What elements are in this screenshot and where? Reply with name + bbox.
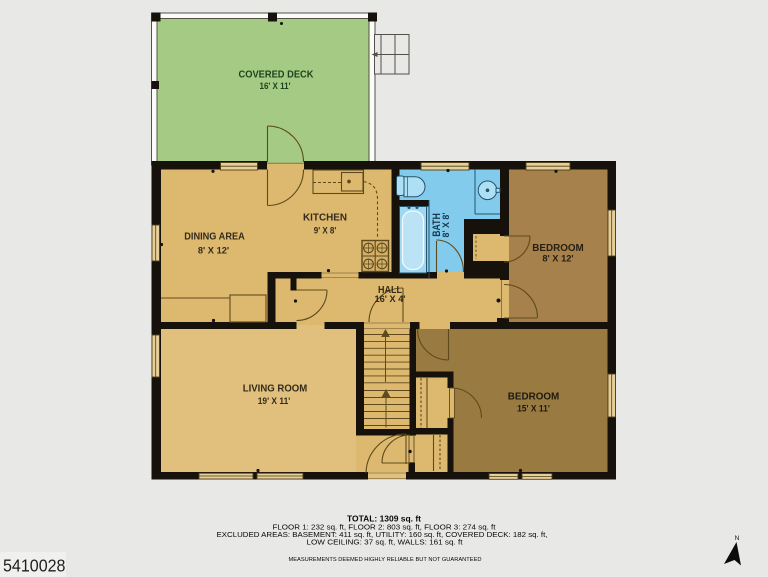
svg-text:KITCHEN: KITCHEN xyxy=(303,212,347,224)
svg-text:BEDROOM: BEDROOM xyxy=(532,242,584,254)
svg-text:8' X 8': 8' X 8' xyxy=(441,213,452,238)
svg-text:16' X 11': 16' X 11' xyxy=(260,81,291,92)
svg-text:9' X 8': 9' X 8' xyxy=(314,226,337,237)
svg-text:DINING AREA: DINING AREA xyxy=(184,231,245,243)
svg-text:5410028: 5410028 xyxy=(3,556,66,576)
svg-text:LOW CEILING: 37 sq. ft, WALLS:: LOW CEILING: 37 sq. ft, WALLS: 161 sq. f… xyxy=(307,538,464,547)
svg-text:COVERED DECK: COVERED DECK xyxy=(239,69,314,81)
svg-text:8' X 12': 8' X 12' xyxy=(198,246,229,257)
svg-text:BEDROOM: BEDROOM xyxy=(508,391,560,403)
svg-text:LIVING ROOM: LIVING ROOM xyxy=(243,383,308,395)
svg-text:15' X 11': 15' X 11' xyxy=(517,404,550,415)
svg-text:16' X 4': 16' X 4' xyxy=(375,294,406,305)
svg-text:MEASUREMENTS DEEMED HIGHLY REL: MEASUREMENTS DEEMED HIGHLY RELIABLE BUT … xyxy=(289,557,482,563)
svg-text:N: N xyxy=(735,535,740,542)
svg-text:19' X 11': 19' X 11' xyxy=(258,396,291,407)
svg-text:8' X 12': 8' X 12' xyxy=(542,254,573,265)
